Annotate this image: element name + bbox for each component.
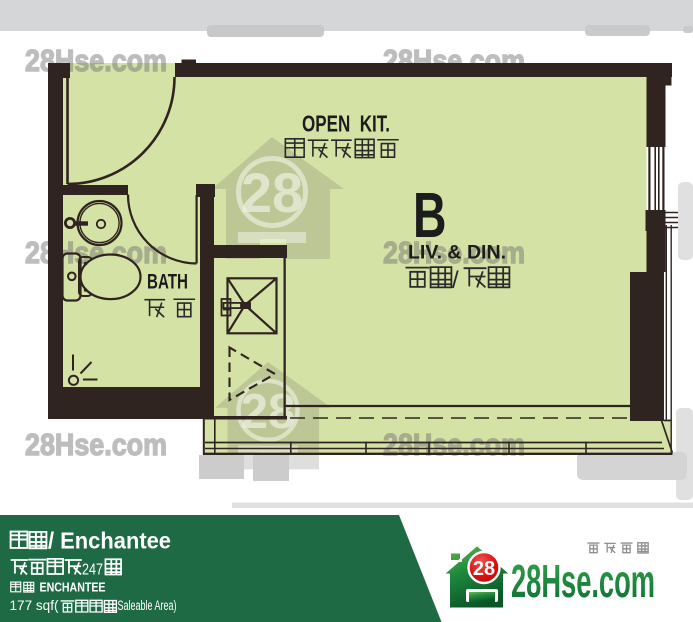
svg-text:28: 28	[473, 558, 495, 580]
svg-text:/ Enchantee: / Enchantee	[48, 527, 171, 553]
svg-text:Saleable Area): Saleable Area)	[118, 598, 177, 613]
svg-text:177 sqf(: 177 sqf(	[10, 598, 60, 613]
svg-text:28Hse.com: 28Hse.com	[511, 555, 655, 607]
svg-text:247: 247	[82, 562, 103, 579]
svg-text:ENCHANTEE: ENCHANTEE	[40, 581, 106, 595]
